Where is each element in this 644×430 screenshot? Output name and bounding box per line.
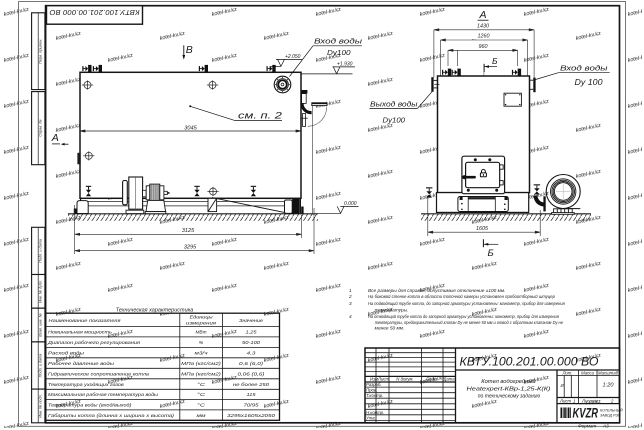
svg-text:Все размеры для справок, допус: Все размеры для справок, допустимые откл… — [368, 288, 505, 293]
svg-text:КОТЕЛЬНЫЙ: КОТЕЛЬНЫЙ — [600, 408, 623, 412]
svg-text:KVZR: KVZR — [573, 406, 599, 421]
svg-text:м3/ч: м3/ч — [195, 350, 209, 356]
svg-text:°С: °С — [197, 402, 206, 408]
svg-text:Справ. №: Справ. № — [39, 120, 43, 137]
svg-text:температуры, предохранительный: температуры, предохранительный клапан Dy… — [375, 319, 564, 325]
svg-text:Формат: Формат — [578, 424, 596, 429]
svg-text:ЗАВОД РЭП: ЗАВОД РЭП — [600, 413, 621, 417]
svg-text:1,25: 1,25 — [246, 329, 257, 335]
svg-text:1260: 1260 — [478, 34, 490, 40]
svg-text:МВт: МВт — [196, 329, 207, 335]
svg-text:Температура воды (вход/выход): Температура воды (вход/выход) — [48, 402, 132, 408]
svg-text:+2.050: +2.050 — [285, 54, 301, 60]
svg-text:Подп. и дата: Подп. и дата — [39, 239, 43, 263]
svg-text:1605: 1605 — [476, 226, 489, 232]
svg-text:Dy100: Dy100 — [327, 48, 351, 57]
svg-text:Номинальная мощность: Номинальная мощность — [48, 329, 113, 335]
svg-text:А: А — [478, 9, 486, 21]
svg-text:2: 2 — [348, 294, 352, 299]
svg-text:КВТУ.100.201.00.000 ВО: КВТУ.100.201.00.000 ВО — [49, 8, 139, 17]
svg-text:Рабочее давление воды: Рабочее давление воды — [48, 361, 115, 367]
svg-text:А: А — [51, 132, 59, 144]
svg-text:Максимальная рабочая температу: Максимальная рабочая температура воды — [48, 392, 159, 398]
svg-text:Расход воды: Расход воды — [48, 350, 85, 356]
svg-text:температуры.: температуры. — [375, 308, 409, 313]
svg-text:Лист: Лист — [377, 377, 389, 382]
svg-text:Подп.: Подп. — [426, 377, 437, 382]
svg-text:На подводящий трубе котла, д: На подводящий трубе котла, до запорной а… — [368, 300, 565, 306]
svg-text:Диапазон рабочего регулировани: Диапазон рабочего регулирования — [47, 340, 141, 346]
svg-text:N докум.: N докум. — [396, 377, 413, 382]
svg-text:КВТУ.100.201.00.000 ВО: КВТУ.100.201.00.000 ВО — [460, 357, 599, 369]
svg-text:1:20: 1:20 — [603, 383, 615, 389]
svg-text:Габариты котла (длинна х ширин: Габариты котла (длинна х ширина х высота… — [48, 413, 174, 419]
svg-text:менее 50 мм.: менее 50 мм. — [375, 326, 405, 331]
svg-text:Листов: Листов — [581, 398, 598, 403]
svg-text:Dy 100: Dy 100 — [575, 77, 603, 87]
svg-text:Взам. инв. №: Взам. инв. № — [39, 313, 43, 336]
svg-text:3295: 3295 — [184, 244, 197, 250]
svg-text:Heatexpert-КВр-1,25-К(К): Heatexpert-КВр-1,25-К(К) — [467, 386, 551, 392]
svg-text:4,3: 4,3 — [247, 350, 256, 356]
svg-text:Разраб.: Разраб. — [366, 382, 382, 387]
svg-text:Инв. № дубл.: Инв. № дубл. — [39, 280, 43, 303]
svg-text:Пров.: Пров. — [366, 388, 377, 393]
svg-text:Утв.: Утв. — [366, 415, 376, 420]
svg-text:Дата: Дата — [442, 377, 455, 382]
svg-text:1: 1 — [349, 288, 352, 293]
svg-text:Лит.: Лит. — [561, 371, 572, 376]
svg-text:не более 250: не более 250 — [233, 382, 269, 388]
svg-text:Вход воды: Вход воды — [314, 36, 363, 45]
svg-text:960: 960 — [479, 44, 488, 50]
svg-text:мм: мм — [197, 414, 207, 419]
svg-text:Изм: Изм — [370, 377, 378, 382]
svg-text:Б: Б — [488, 248, 494, 259]
svg-text:МПа (кгс/см2): МПа (кгс/см2) — [181, 371, 221, 377]
svg-text:0.000: 0.000 — [344, 201, 357, 207]
svg-text:3: 3 — [349, 301, 352, 306]
svg-text:3045: 3045 — [184, 126, 197, 132]
svg-text:50-100: 50-100 — [242, 340, 260, 346]
svg-text:Температура уходящих газов: Температура уходящих газов — [48, 382, 124, 388]
svg-text:Б: Б — [492, 56, 498, 66]
svg-text:°С: °С — [197, 382, 206, 388]
svg-text:Т.контр.: Т.контр. — [366, 393, 383, 398]
svg-text:3295х1605х2050: 3295х1605х2050 — [227, 413, 275, 419]
svg-text:°С: °С — [197, 392, 206, 398]
svg-text:На отводящий трубе котла до за: На отводящий трубе котла до запорной арм… — [368, 313, 559, 319]
svg-text:А3: А3 — [602, 424, 609, 429]
svg-text:Выход воды: Выход воды — [370, 100, 418, 109]
svg-text:измерения: измерения — [186, 321, 217, 326]
svg-text:по техническому заданию: по техническому заданию — [478, 393, 541, 399]
svg-text:Вход воды: Вход воды — [560, 64, 608, 73]
svg-text:На боковой стенке котла в обла: На боковой стенке котла в области топочн… — [368, 293, 555, 299]
svg-text:Масса: Масса — [581, 371, 594, 376]
svg-text:0,6 (6,0): 0,6 (6,0) — [239, 361, 264, 367]
svg-text:%: % — [199, 340, 204, 346]
svg-text:Перв. примен.: Перв. примен. — [39, 39, 43, 64]
svg-text:Гидравлическое сопротивление к: Гидравлическое сопротивление котла — [48, 371, 149, 377]
svg-text:Dy100: Dy100 — [383, 115, 406, 124]
svg-text:0,06 (0,6): 0,06 (0,6) — [238, 371, 266, 377]
svg-text:3125: 3125 — [182, 228, 195, 234]
svg-text:Значение: Значение — [239, 318, 263, 324]
svg-text:115: 115 — [247, 392, 256, 398]
svg-text:Котел водогрейный: Котел водогрейный — [481, 378, 536, 385]
svg-text:+1.930: +1.930 — [337, 62, 353, 68]
svg-text:4: 4 — [349, 314, 352, 319]
svg-text:Подп. и дата: Подп. и дата — [39, 354, 43, 378]
svg-text:70/95: 70/95 — [244, 402, 259, 408]
svg-text:см. п. 2: см. п. 2 — [238, 111, 283, 122]
svg-text:Масштаб: Масштаб — [598, 371, 619, 376]
svg-text:В: В — [186, 44, 193, 56]
svg-text:МПа (кгс/см2): МПа (кгс/см2) — [181, 361, 221, 367]
svg-text:Н.контр.: Н.контр. — [366, 410, 384, 415]
svg-text:Инв. № подл.: Инв. № подл. — [39, 394, 43, 418]
svg-text:1430: 1430 — [477, 23, 489, 29]
svg-text:Единицы: Единицы — [190, 315, 214, 321]
svg-text:Лист: Лист — [559, 398, 571, 403]
svg-text:Наименование показателя: Наименование показателя — [49, 318, 121, 324]
